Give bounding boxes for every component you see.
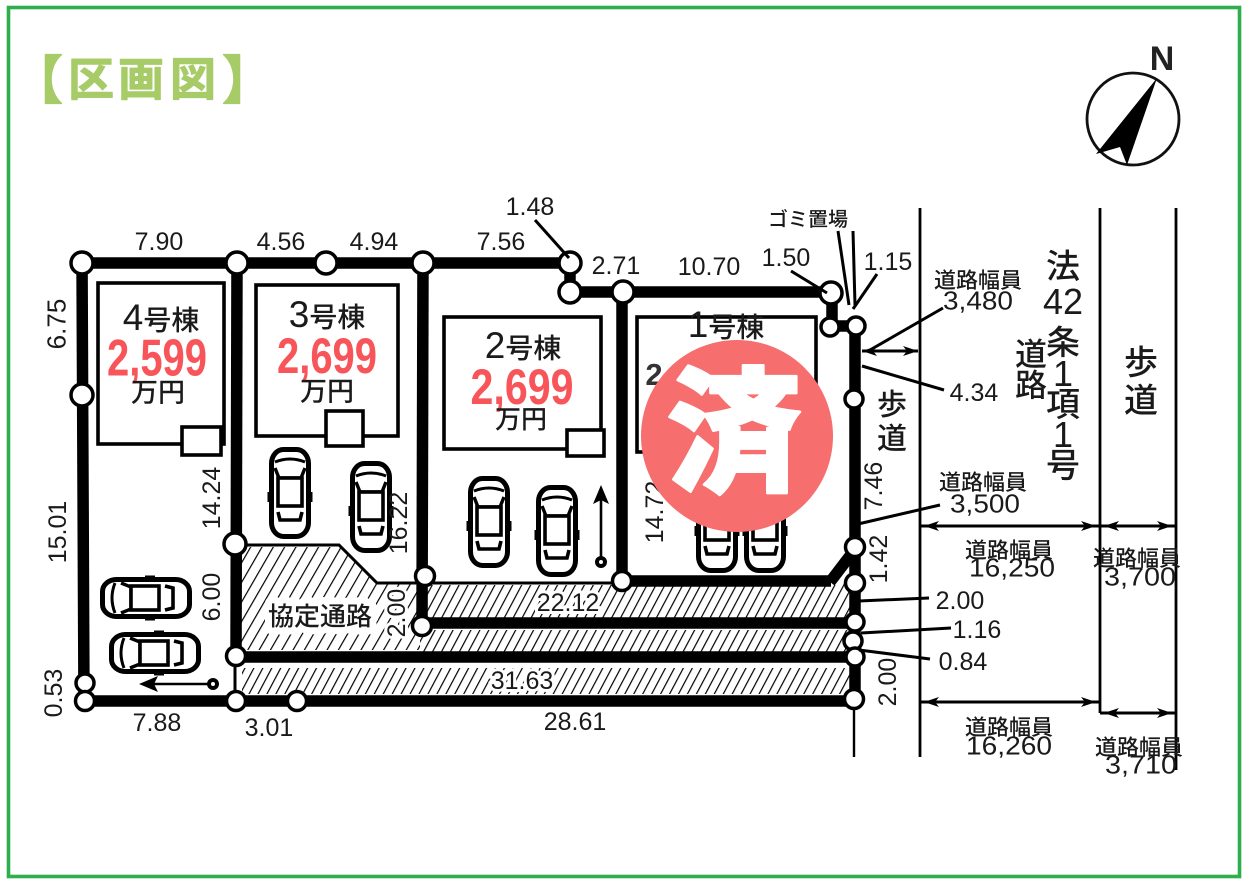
svg-text:16,260: 16,260 bbox=[966, 730, 1052, 760]
svg-text:6.75: 6.75 bbox=[41, 299, 71, 350]
svg-text:31.63: 31.63 bbox=[491, 667, 554, 695]
svg-text:2,699: 2,699 bbox=[277, 328, 377, 384]
svg-text:1.50: 1.50 bbox=[762, 244, 811, 272]
svg-text:1.48: 1.48 bbox=[506, 193, 555, 221]
svg-text:1.42: 1.42 bbox=[865, 535, 893, 584]
svg-text:0.84: 0.84 bbox=[939, 648, 988, 676]
svg-text:16,250: 16,250 bbox=[969, 552, 1055, 582]
svg-text:3,480: 3,480 bbox=[943, 285, 1013, 315]
svg-text:16.22: 16.22 bbox=[385, 492, 413, 555]
svg-text:28.61: 28.61 bbox=[544, 708, 607, 736]
svg-text:4.94: 4.94 bbox=[350, 228, 399, 256]
svg-text:0.53: 0.53 bbox=[40, 669, 68, 718]
svg-text:10.70: 10.70 bbox=[678, 253, 741, 281]
svg-text:3,500: 3,500 bbox=[950, 488, 1020, 518]
svg-text:14.24: 14.24 bbox=[198, 467, 226, 530]
svg-text:1.15: 1.15 bbox=[864, 248, 913, 276]
svg-text:2.00: 2.00 bbox=[936, 587, 985, 615]
svg-text:7.56: 7.56 bbox=[477, 228, 526, 256]
svg-text:15.01: 15.01 bbox=[44, 501, 72, 564]
svg-text:1.16: 1.16 bbox=[953, 616, 1002, 644]
svg-text:3.01: 3.01 bbox=[245, 714, 294, 742]
svg-text:7.46: 7.46 bbox=[860, 462, 888, 511]
svg-text:2.00: 2.00 bbox=[874, 658, 902, 707]
svg-text:2,699: 2,699 bbox=[471, 359, 574, 415]
svg-text:2,599: 2,599 bbox=[107, 330, 207, 388]
svg-text:1: 1 bbox=[688, 304, 709, 345]
svg-text:4.56: 4.56 bbox=[257, 228, 306, 256]
svg-text:N: N bbox=[1150, 40, 1175, 78]
svg-text:22.12: 22.12 bbox=[537, 589, 600, 617]
svg-text:1: 1 bbox=[1053, 414, 1073, 455]
svg-text:42: 42 bbox=[1043, 281, 1083, 322]
svg-text:3,700: 3,700 bbox=[1104, 561, 1176, 591]
svg-text:2.00: 2.00 bbox=[383, 589, 411, 638]
svg-text:2.71: 2.71 bbox=[592, 252, 641, 280]
svg-text:6.00: 6.00 bbox=[198, 573, 226, 622]
svg-text:1: 1 bbox=[1053, 353, 1073, 394]
svg-text:7.90: 7.90 bbox=[135, 228, 184, 256]
svg-text:3,710: 3,710 bbox=[1105, 749, 1177, 779]
svg-text:4.34: 4.34 bbox=[950, 379, 999, 407]
svg-text:7.88: 7.88 bbox=[133, 709, 182, 737]
